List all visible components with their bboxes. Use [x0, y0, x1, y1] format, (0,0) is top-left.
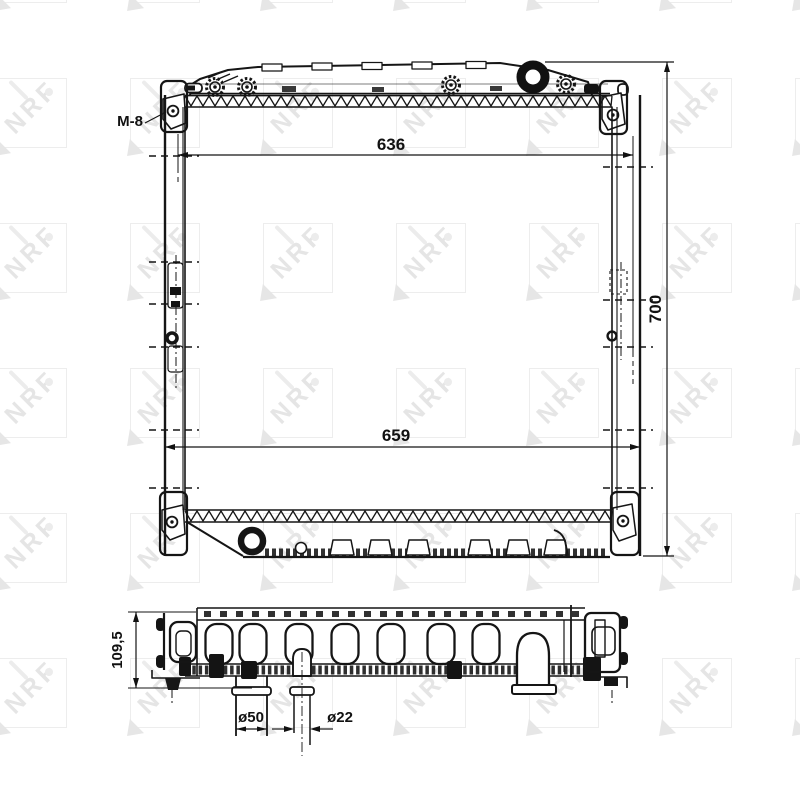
inlet-diameter-label: ø50: [238, 709, 264, 726]
bottom-band-top: [197, 608, 585, 620]
tube-opening: [378, 624, 405, 664]
side-plate-right: [603, 95, 653, 556]
toothed-bolt-icon: [443, 77, 460, 94]
tube-openings: [206, 624, 500, 664]
end-bracket-left: [152, 608, 200, 703]
arrowhead: [284, 726, 294, 732]
filler-pipe: [290, 649, 314, 756]
arrowhead: [623, 152, 633, 158]
overall-height-label: 700: [646, 295, 665, 323]
thread-label: M-8: [117, 113, 143, 130]
dimension-pipe50: ø50: [236, 709, 267, 732]
tube-opening: [428, 624, 455, 664]
dimension-overall-height: 700: [545, 62, 674, 556]
dimension-core-width: 636: [178, 134, 633, 388]
arrowhead: [664, 546, 670, 556]
arrowhead: [133, 678, 139, 688]
core-width-label: 636: [377, 135, 405, 154]
right-pin: [584, 84, 599, 94]
arrowhead: [310, 726, 320, 732]
outlet-pipe: [512, 633, 556, 694]
radiator-technical-drawing: 636 659 700 M-8: [0, 0, 800, 800]
thread-callout: M-8: [117, 112, 166, 130]
arrowhead: [664, 62, 670, 72]
overall-width-label: 659: [382, 426, 410, 445]
bottom-tank: [187, 522, 610, 557]
tube-opening: [332, 624, 359, 664]
filler-diameter-label: ø22: [327, 709, 353, 726]
inlet-pipe: [232, 676, 271, 736]
arrowhead: [165, 444, 175, 450]
bottom-view: 109,5 ø50 ø22: [109, 605, 628, 756]
filler-neck-icon: [521, 65, 545, 89]
arrowhead: [133, 612, 139, 622]
arrowhead: [257, 727, 267, 732]
side-plate-left: [149, 95, 199, 556]
gasket-zigzag-top: [185, 96, 612, 106]
dimension-pipe22: ø22: [272, 709, 353, 732]
depth-label: 109,5: [109, 631, 126, 669]
dimension-overall-width: 659: [165, 426, 640, 450]
mounting-bracket-bottom-right: [611, 492, 639, 555]
drawing-page: NRFNRFNRFNRFNRFNRFNRFNRFNRFNRFNRFNRFNRFN…: [0, 0, 800, 800]
radiator-core: [185, 96, 612, 523]
arrowhead: [630, 444, 640, 450]
drain-plug-icon: [241, 530, 263, 552]
tube-opening: [473, 624, 500, 664]
gasket-zigzag-bottom: [185, 511, 612, 521]
tube-opening: [240, 624, 267, 664]
top-header: [185, 62, 628, 96]
front-view: 636 659 700 M-8: [117, 62, 674, 558]
arrowhead: [236, 727, 246, 732]
